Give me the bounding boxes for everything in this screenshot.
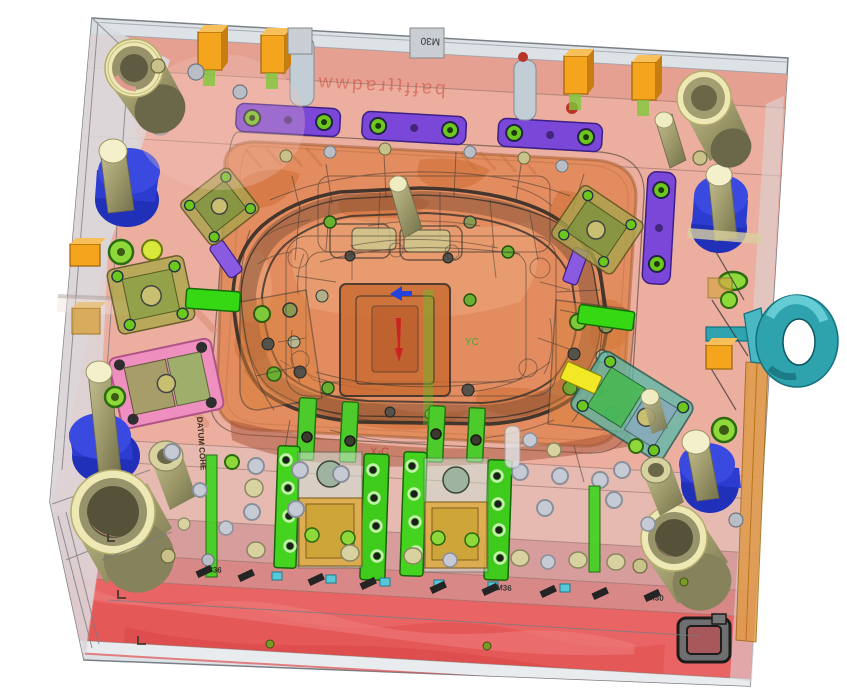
svg-text:YC: YC	[465, 337, 479, 348]
svg-text:M30: M30	[420, 35, 440, 47]
svg-text:M36: M36	[496, 583, 513, 593]
